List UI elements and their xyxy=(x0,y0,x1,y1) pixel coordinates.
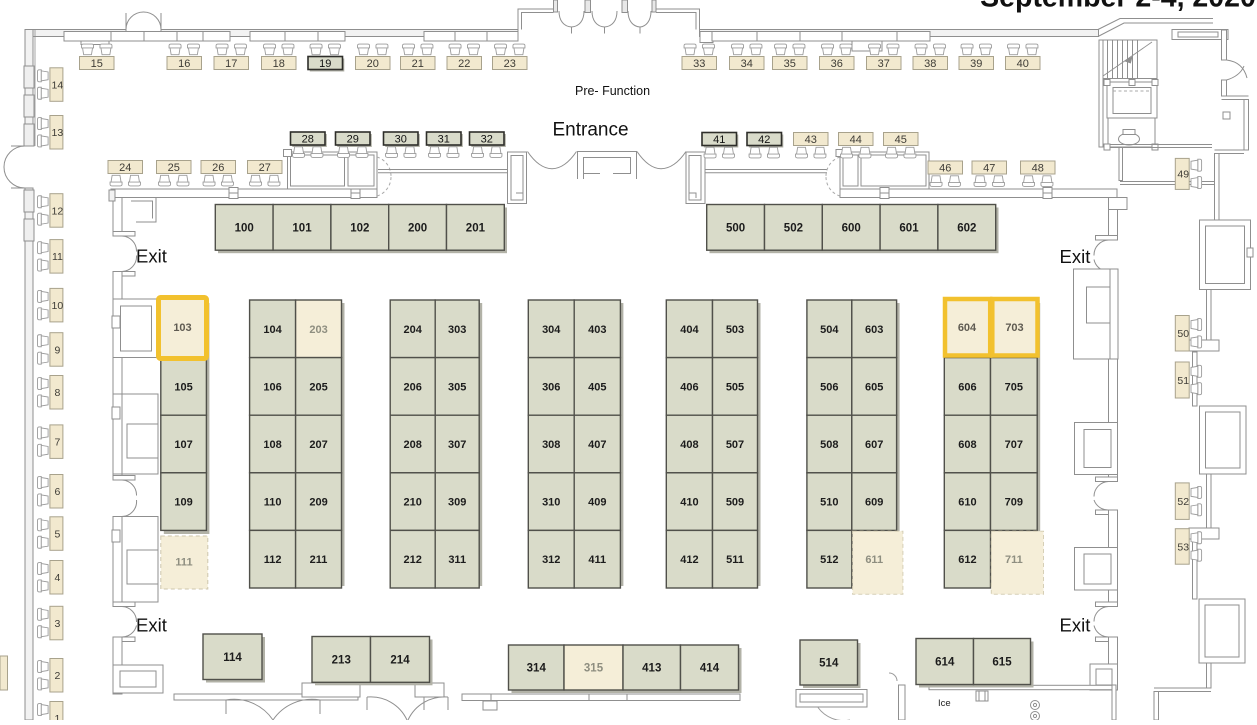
svg-text:108: 108 xyxy=(263,439,281,451)
svg-text:602: 602 xyxy=(957,222,976,234)
svg-text:305: 305 xyxy=(448,381,466,393)
svg-text:49: 49 xyxy=(1177,169,1189,181)
svg-text:406: 406 xyxy=(680,381,698,393)
svg-text:500: 500 xyxy=(726,222,745,234)
svg-text:512: 512 xyxy=(820,554,838,566)
svg-text:9: 9 xyxy=(54,344,60,356)
svg-text:19: 19 xyxy=(319,58,331,70)
svg-text:510: 510 xyxy=(820,497,838,509)
svg-text:8: 8 xyxy=(54,387,60,399)
svg-text:September 2-4, 2020: September 2-4, 2020 xyxy=(980,0,1256,14)
svg-text:709: 709 xyxy=(1005,497,1023,509)
svg-text:11: 11 xyxy=(52,251,63,263)
svg-text:410: 410 xyxy=(680,497,698,509)
svg-text:514: 514 xyxy=(819,658,839,670)
svg-text:703: 703 xyxy=(1005,322,1023,334)
svg-text:601: 601 xyxy=(899,222,919,234)
svg-text:7: 7 xyxy=(54,436,60,448)
svg-text:31: 31 xyxy=(438,133,450,145)
svg-text:103: 103 xyxy=(173,322,191,334)
svg-text:309: 309 xyxy=(448,497,466,509)
svg-text:32: 32 xyxy=(481,133,493,145)
svg-text:33: 33 xyxy=(693,58,705,70)
svg-text:413: 413 xyxy=(642,663,661,675)
svg-text:204: 204 xyxy=(404,324,423,336)
svg-text:5: 5 xyxy=(54,528,60,540)
svg-text:608: 608 xyxy=(958,439,976,451)
svg-text:405: 405 xyxy=(588,381,606,393)
svg-text:314: 314 xyxy=(527,663,547,675)
svg-text:606: 606 xyxy=(958,381,976,393)
svg-text:48: 48 xyxy=(1032,162,1044,174)
svg-text:404: 404 xyxy=(680,324,699,336)
svg-text:511: 511 xyxy=(726,554,744,566)
svg-text:214: 214 xyxy=(390,654,410,666)
svg-text:46: 46 xyxy=(939,162,951,174)
svg-text:42: 42 xyxy=(758,134,770,146)
svg-text:409: 409 xyxy=(588,497,606,509)
svg-text:604: 604 xyxy=(958,322,977,334)
svg-text:109: 109 xyxy=(174,497,192,509)
svg-text:213: 213 xyxy=(332,654,351,666)
svg-text:45: 45 xyxy=(895,134,907,146)
svg-text:Ice: Ice xyxy=(938,698,951,709)
svg-text:311: 311 xyxy=(448,554,466,566)
svg-text:26: 26 xyxy=(212,162,224,174)
svg-text:24: 24 xyxy=(119,162,131,174)
svg-text:414: 414 xyxy=(700,663,720,675)
svg-text:112: 112 xyxy=(264,554,282,566)
svg-text:603: 603 xyxy=(865,324,883,336)
svg-text:36: 36 xyxy=(831,58,843,70)
svg-text:14: 14 xyxy=(52,79,64,91)
svg-text:Exit: Exit xyxy=(1060,246,1091,267)
svg-text:508: 508 xyxy=(820,439,838,451)
svg-text:110: 110 xyxy=(264,497,282,509)
svg-text:25: 25 xyxy=(168,162,180,174)
svg-text:Exit: Exit xyxy=(136,615,167,636)
svg-text:208: 208 xyxy=(404,439,422,451)
svg-text:212: 212 xyxy=(404,554,422,566)
svg-text:612: 612 xyxy=(958,554,976,566)
svg-text:21: 21 xyxy=(412,58,424,70)
svg-text:306: 306 xyxy=(542,381,560,393)
svg-text:200: 200 xyxy=(408,222,427,234)
svg-text:22: 22 xyxy=(458,58,470,70)
svg-text:209: 209 xyxy=(309,497,327,509)
svg-text:29: 29 xyxy=(347,133,359,145)
svg-text:17: 17 xyxy=(225,58,237,70)
svg-text:15: 15 xyxy=(91,58,103,70)
svg-text:13: 13 xyxy=(52,127,64,139)
svg-text:101: 101 xyxy=(292,222,312,234)
svg-text:23: 23 xyxy=(504,58,516,70)
svg-text:600: 600 xyxy=(842,222,861,234)
svg-text:51: 51 xyxy=(1177,375,1189,387)
svg-text:52: 52 xyxy=(1177,496,1189,508)
svg-text:206: 206 xyxy=(404,381,422,393)
svg-text:307: 307 xyxy=(448,439,466,451)
svg-text:205: 205 xyxy=(309,381,327,393)
svg-text:304: 304 xyxy=(542,324,561,336)
svg-text:407: 407 xyxy=(588,439,606,451)
svg-text:37: 37 xyxy=(878,58,890,70)
svg-text:303: 303 xyxy=(448,324,466,336)
svg-text:30: 30 xyxy=(395,133,407,145)
svg-text:102: 102 xyxy=(350,222,369,234)
svg-text:615: 615 xyxy=(992,657,1012,669)
svg-text:403: 403 xyxy=(588,324,606,336)
svg-text:34: 34 xyxy=(741,58,753,70)
svg-text:4: 4 xyxy=(54,572,60,584)
svg-text:Entrance: Entrance xyxy=(552,120,628,141)
svg-text:39: 39 xyxy=(970,58,982,70)
svg-text:100: 100 xyxy=(235,222,254,234)
svg-text:Pre- Function: Pre- Function xyxy=(575,84,650,98)
svg-text:18: 18 xyxy=(273,58,285,70)
svg-text:310: 310 xyxy=(542,497,560,509)
svg-text:38: 38 xyxy=(924,58,936,70)
svg-text:20: 20 xyxy=(367,58,379,70)
svg-text:312: 312 xyxy=(542,554,560,566)
svg-text:27: 27 xyxy=(259,162,271,174)
svg-text:111: 111 xyxy=(175,557,192,569)
svg-text:412: 412 xyxy=(680,554,698,566)
svg-text:504: 504 xyxy=(820,324,839,336)
svg-text:1: 1 xyxy=(54,713,60,720)
svg-text:207: 207 xyxy=(309,439,327,451)
svg-text:53: 53 xyxy=(1177,541,1189,553)
svg-text:408: 408 xyxy=(680,439,698,451)
svg-text:47: 47 xyxy=(983,162,995,174)
svg-text:43: 43 xyxy=(805,134,817,146)
svg-text:210: 210 xyxy=(404,497,422,509)
svg-text:507: 507 xyxy=(726,439,744,451)
svg-text:505: 505 xyxy=(726,381,744,393)
svg-text:6: 6 xyxy=(54,486,60,498)
svg-text:44: 44 xyxy=(850,134,862,146)
svg-text:41: 41 xyxy=(713,134,725,146)
svg-text:315: 315 xyxy=(584,663,604,675)
svg-text:28: 28 xyxy=(302,133,314,145)
svg-text:106: 106 xyxy=(263,381,281,393)
svg-text:605: 605 xyxy=(865,381,883,393)
svg-text:35: 35 xyxy=(784,58,796,70)
svg-text:308: 308 xyxy=(542,439,560,451)
svg-text:105: 105 xyxy=(174,381,192,393)
svg-text:Exit: Exit xyxy=(136,246,167,267)
svg-text:16: 16 xyxy=(178,58,190,70)
svg-text:411: 411 xyxy=(588,554,606,566)
svg-text:3: 3 xyxy=(54,618,60,630)
svg-text:609: 609 xyxy=(865,497,883,509)
svg-text:12: 12 xyxy=(52,205,64,217)
svg-text:506: 506 xyxy=(820,381,838,393)
svg-text:211: 211 xyxy=(310,554,328,566)
svg-text:50: 50 xyxy=(1177,328,1189,340)
svg-text:611: 611 xyxy=(865,554,883,566)
svg-text:2: 2 xyxy=(54,670,60,682)
svg-text:107: 107 xyxy=(174,439,192,451)
svg-text:707: 707 xyxy=(1005,439,1023,451)
svg-text:201: 201 xyxy=(466,222,486,234)
svg-text:203: 203 xyxy=(309,324,327,336)
svg-text:10: 10 xyxy=(52,300,64,312)
svg-text:104: 104 xyxy=(263,324,282,336)
svg-text:705: 705 xyxy=(1005,381,1023,393)
svg-text:509: 509 xyxy=(726,497,744,509)
svg-text:Exit: Exit xyxy=(1060,615,1091,636)
svg-text:503: 503 xyxy=(726,324,744,336)
svg-text:114: 114 xyxy=(223,652,242,664)
svg-text:711: 711 xyxy=(1005,554,1023,566)
svg-text:614: 614 xyxy=(935,657,955,669)
svg-text:502: 502 xyxy=(784,222,803,234)
svg-text:40: 40 xyxy=(1017,58,1029,70)
svg-text:607: 607 xyxy=(865,439,883,451)
svg-text:610: 610 xyxy=(958,497,976,509)
